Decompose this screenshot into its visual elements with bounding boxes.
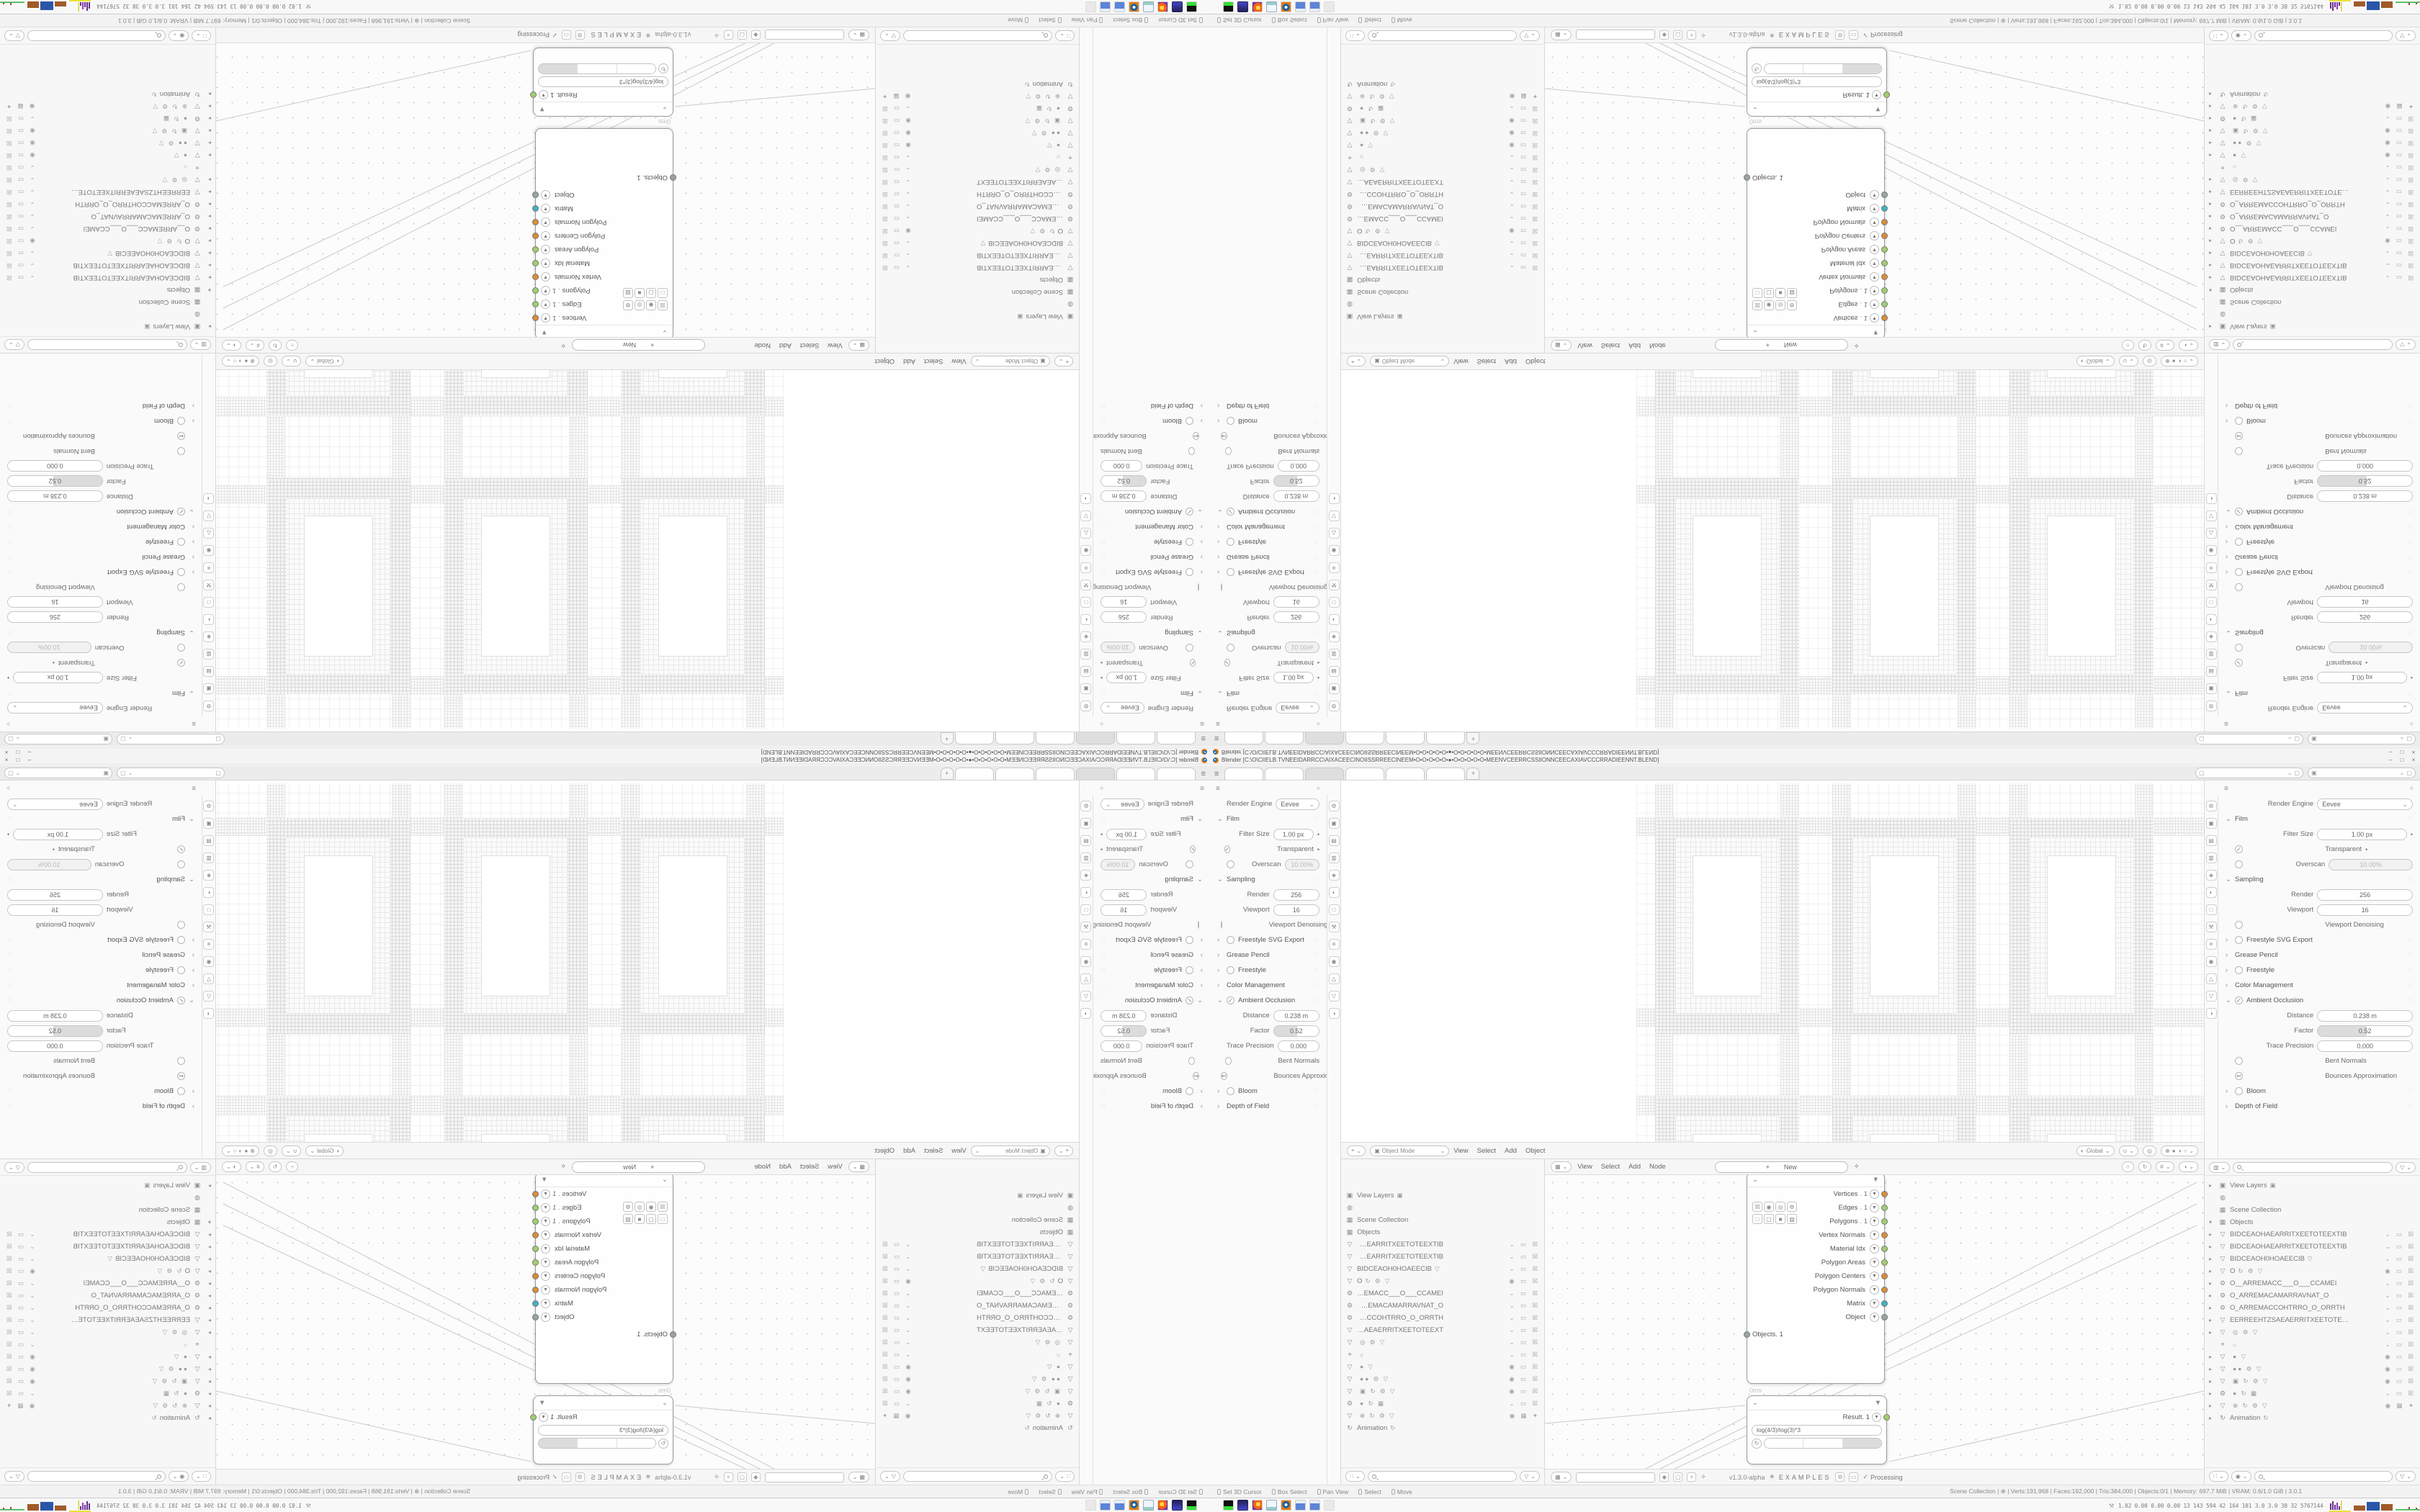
properties-row[interactable]: Viewport 16 ∷ — [0, 595, 202, 610]
checkbox[interactable] — [1221, 1072, 1227, 1080]
expand-caret-icon[interactable]: ▸ — [2209, 1280, 2215, 1287]
calculator-icon[interactable] — [1114, 1, 1125, 12]
object-name[interactable]: BIDCEAOH0HOAEECIB — [115, 249, 190, 257]
outliner-row[interactable]: ▸ ▽ ●● ⚙ ▽ ◉ ▭ ☒ — [879, 1373, 1076, 1385]
collapse-icon[interactable]: ⌄ — [1752, 105, 1758, 113]
properties-tab-icon[interactable]: ⚒ — [2206, 580, 2217, 590]
expand-caret-icon[interactable]: ▸ — [2209, 1378, 2215, 1385]
expand-caret-icon[interactable]: ▸ — [205, 1390, 211, 1397]
outliner-search[interactable] — [27, 1162, 187, 1173]
checkbox[interactable] — [177, 936, 185, 944]
panel-grip-icon[interactable]: ∷ — [7, 402, 12, 409]
user-filter-button[interactable]: ◉⌄ — [2231, 1471, 2252, 1482]
node-canvas[interactable]: ⌄ ▼ ☒◉◎⚙ □▢■▨ Vertices . 1 ▼ Edges . 1 — [1545, 1175, 2204, 1469]
checkbox[interactable] — [1227, 966, 1234, 974]
property-value[interactable]: 0.52 — [1273, 1025, 1319, 1037]
section-caret-icon[interactable]: ⌄ — [2226, 629, 2231, 636]
menu-item[interactable]: Add — [779, 341, 792, 349]
outliner-row[interactable]: ▸ ▽ ⊕ ↻ ⚙ ▽ ◉ ▦ ✦ — [3, 100, 212, 112]
property-value[interactable]: 0.238 m — [1101, 1010, 1147, 1022]
properties-row[interactable]: Transparent ∷ — [0, 842, 202, 857]
visibility-toggle-icons[interactable]: ⌄ ▭ ☒ — [2385, 114, 2416, 122]
object-name[interactable]: O_ARREMACAMARRAVNAT_O — [1357, 202, 1443, 210]
checkbox[interactable] — [1190, 659, 1196, 667]
funnel-icon[interactable]: ▼ — [541, 1176, 547, 1184]
properties-row[interactable]: Render 256 ∷ — [1093, 610, 1210, 625]
object-name[interactable]: O_ARREMACCOHTRRO_O_ORRTH — [75, 200, 190, 208]
section-caret-icon[interactable]: › — [2226, 402, 2231, 410]
property-value[interactable]: 256 — [1273, 612, 1319, 624]
expand-caret-icon[interactable]: ▸ — [205, 323, 211, 330]
properties-row[interactable]: Filter Size 1.00 px ∷ — [1093, 670, 1210, 685]
outliner-row[interactable]: ▸ ▽ ▣ ↻ ⚙ ▽ ◉ ▭ ☒ — [2208, 1375, 2417, 1387]
fake-user-icon[interactable]: ◆ — [1659, 1472, 1669, 1482]
properties-row[interactable]: Bounces Approximation ∷ — [1210, 1068, 1327, 1084]
maximize-button[interactable]: □ — [14, 749, 22, 755]
property-value[interactable]: Eevee — [1101, 798, 1144, 810]
panel-grip-icon[interactable]: ∷ — [2408, 569, 2413, 575]
object-name[interactable]: View Layers — [1026, 312, 1063, 320]
settings-icon[interactable]: ⚙ — [575, 30, 585, 40]
properties-tab-icon[interactable]: ◉ — [204, 545, 215, 556]
properties-row[interactable]: › Grease Pencil ∷ — [2218, 948, 2420, 963]
menu-icon[interactable]: ≡ — [1201, 770, 1206, 778]
menu-item[interactable]: View — [951, 358, 966, 366]
pin-icon[interactable]: ✧ — [1854, 1163, 1860, 1171]
expand-caret-icon[interactable]: ▸ — [2209, 127, 2215, 134]
property-value[interactable]: 10.00% — [2329, 859, 2413, 870]
properties-row[interactable]: ⌄ Sampling ∷ — [1093, 625, 1210, 640]
socket-dropdown-icon[interactable]: ▼ — [1870, 190, 1879, 199]
menu-item[interactable]: Select — [800, 1163, 819, 1171]
properties-row[interactable]: ⌄ Film ∷ — [1210, 811, 1327, 827]
outliner-search[interactable] — [1368, 30, 1517, 41]
transform-orientation-selector[interactable]: ◐ Global ⌄ — [305, 1146, 344, 1156]
outliner-row[interactable]: ⌖ ○ ⌄ ▭ ☒ — [2208, 1338, 2417, 1351]
visibility-toggle-icons[interactable]: ◉ ▭ ☒ — [4, 1365, 35, 1373]
outliner-row[interactable]: ▸ ⚙ O__ARREMACC___O___CCAMEI ⌄ ▭ ☒ — [879, 212, 1076, 225]
section-caret-icon[interactable]: ⌄ — [1197, 689, 1203, 697]
workspace-tab[interactable] — [1076, 732, 1115, 744]
outliner-row[interactable]: ▸ ▽ BIDCEAOHAEARRITXEETOTEEXTIB ⌄ ▭ ☒ — [3, 1241, 212, 1253]
node-output-socket-row[interactable]: Vertices . 1 ▼ — [1747, 311, 1884, 325]
section-caret-icon[interactable]: ⌄ — [1217, 689, 1223, 697]
output-socket[interactable] — [532, 1300, 539, 1307]
panel-grip-icon[interactable]: ∷ — [1101, 690, 1105, 696]
outliner-row[interactable]: ▸ ▽ EERREEHTZSAEAERRITXEETOTEEXT ⌄ ▭ ☒ — [879, 176, 1076, 188]
properties-row[interactable]: Trace Precision 0.000 ∷ — [1210, 1038, 1327, 1053]
section-caret-icon[interactable]: ⌄ — [1197, 629, 1203, 636]
search-input[interactable] — [2266, 32, 2388, 40]
blender-icon[interactable] — [1281, 1500, 1291, 1511]
node-output-socket-row[interactable]: Object ▼ — [536, 188, 673, 202]
outliner-row[interactable]: ▸ ▽ EERREEHTZSAEAERRITXEETOTEEXT ⌄ ▭ ☒ — [1344, 1324, 1541, 1336]
unlink-icon[interactable]: × — [1687, 1472, 1696, 1482]
properties-tab-icon[interactable]: ✳ — [2206, 562, 2217, 573]
copy-icon[interactable]: ▢ — [738, 30, 747, 40]
workspace-tab[interactable] — [1265, 768, 1304, 780]
properties-tab-icon[interactable]: ▤ — [204, 835, 215, 846]
outliner-row[interactable]: ▸ ▽ ● ▽ ◉ ▭ ☒ — [879, 1361, 1076, 1373]
properties-tab-icon[interactable]: ✳ — [204, 562, 215, 573]
checkbox[interactable] — [2235, 508, 2243, 516]
socket-dropdown-icon[interactable]: ▼ — [541, 1285, 550, 1295]
maximize-button[interactable]: □ — [2398, 749, 2406, 755]
section-caret-icon[interactable]: › — [1197, 936, 1203, 944]
filter-button[interactable]: ▽⌄ — [4, 1471, 24, 1482]
formula-field[interactable]: log(4/3)/log(3)*3 — [1752, 1425, 1882, 1436]
properties-row[interactable]: Bounces Approximation ∷ — [2218, 428, 2420, 444]
checkbox[interactable] — [1227, 936, 1234, 944]
node-option-icon[interactable]: ◎ — [635, 1202, 645, 1212]
properties-row[interactable]: ⌄ Film ∷ — [1093, 811, 1210, 827]
section-caret-icon[interactable]: › — [1197, 1087, 1203, 1095]
panel-grip-icon[interactable]: ∷ — [7, 554, 12, 560]
section-caret-icon[interactable]: ⌄ — [1217, 876, 1223, 883]
panel-grip-icon[interactable]: ∷ — [1101, 816, 1105, 822]
panel-grip-icon[interactable]: ∷ — [2408, 982, 2413, 989]
outliner-row[interactable]: ▸ ⚙ O__ARREMACC___O___CCAMEI ⌄ ▭ ☒ — [3, 222, 212, 235]
section-caret-icon[interactable]: › — [2226, 538, 2231, 546]
menu-item[interactable]: View — [1577, 341, 1592, 349]
node-option-icon[interactable]: ☒ — [658, 1202, 668, 1212]
visibility-toggle-icons[interactable]: ⌄ ▭ ☒ — [4, 176, 35, 184]
panel-grip-icon[interactable]: ∷ — [1315, 629, 1319, 636]
property-value[interactable]: 0.52 — [2317, 1025, 2413, 1037]
socket-dropdown-icon[interactable]: ▼ — [541, 245, 550, 254]
properties-row[interactable]: Transparent ∷ — [2218, 655, 2420, 670]
viewlayer-selector[interactable]: ▣ ⌄ ▢ — [4, 768, 112, 778]
object-name[interactable]: View Layers — [2230, 1182, 2267, 1189]
object-name[interactable]: BIDCEAOHAEARRITXEETOTEEXTIB — [73, 1243, 190, 1251]
workspace-tab[interactable] — [1426, 732, 1465, 744]
properties-row[interactable]: › Bloom ∷ — [1210, 413, 1327, 428]
outliner-row[interactable]: ◍ — [2208, 1192, 2417, 1204]
terminal-icon[interactable] — [1223, 1500, 1234, 1511]
properties-row[interactable]: Render 256 ∷ — [0, 610, 202, 625]
visibility-toggle-icons[interactable]: ◉ ▭ ☒ — [2385, 1353, 2416, 1361]
result-node[interactable]: ⌄ ▼ Result. 1 ▼ log(4/3)/log(3)*3 ↻ — [533, 1395, 673, 1464]
outliner-row[interactable]: ▸ ⚙ ● ↻ ▦ ⌄ ▭ ☒ — [1344, 102, 1541, 114]
new-scene-icon[interactable]: ▢ — [2294, 770, 2300, 776]
section-caret-icon[interactable]: › — [2226, 936, 2231, 944]
properties-tab-icon[interactable]: ▽ — [1329, 991, 1340, 1002]
object-name[interactable]: BIDCEAOH0HOAEECIB — [1357, 239, 1432, 247]
properties-row[interactable]: Transparent ∷ — [1093, 655, 1210, 670]
visibility-toggle-icons[interactable]: ⌄ ▭ ☒ — [2385, 188, 2416, 196]
menu-item[interactable]: Select — [800, 341, 819, 349]
snap-toggle[interactable]: #⌄ — [246, 340, 264, 351]
properties-tab-icon[interactable]: ◉ — [2206, 545, 2217, 556]
processing-status[interactable]: ✓ Processing — [1863, 31, 1902, 39]
node-output-socket-row[interactable]: Material Idx ▼ — [1747, 1242, 1884, 1256]
expand-caret-icon[interactable]: ▸ — [205, 1415, 211, 1421]
visibility-toggle-icons[interactable]: ◉ ▭ ☒ — [4, 1377, 35, 1385]
node-option-icon[interactable]: □ — [658, 1214, 668, 1224]
outliner-row[interactable]: ▸ ▣ View Layers ▣ — [3, 320, 212, 333]
copy-icon[interactable]: ▢ — [738, 1472, 747, 1482]
search-input[interactable] — [2244, 1164, 2388, 1171]
panel-grip-icon[interactable]: ∷ — [1101, 967, 1105, 973]
outliner-row[interactable]: ▸ ▽ O ↻ ⚙ ▽ ◉ ▭ ☒ — [3, 235, 212, 247]
outliner-row[interactable]: ◍ — [1344, 298, 1541, 310]
output-socket[interactable] — [532, 219, 539, 225]
properties-row[interactable]: › Freestyle ∷ — [2218, 963, 2420, 978]
properties-row[interactable]: › Freestyle SVG Export ∷ — [1093, 564, 1210, 580]
expand-caret-icon[interactable]: ▸ — [205, 1317, 211, 1323]
properties-tab-icon[interactable]: ▣ — [2206, 818, 2217, 829]
properties-row[interactable]: Distance 0.238 m ∷ — [2218, 489, 2420, 504]
properties-tab-icon[interactable]: ⚙ — [2206, 801, 2217, 811]
outliner-row[interactable]: ⌖ ○ ⌄ ▭ ☒ — [3, 161, 212, 174]
object-name[interactable]: Scene Collection — [2230, 1206, 2281, 1214]
expand-caret-icon[interactable]: ▸ — [2209, 1403, 2215, 1409]
property-value[interactable]: 0.000 — [2317, 461, 2413, 472]
property-value[interactable]: 0.000 — [1278, 461, 1319, 472]
calculator-icon[interactable] — [1295, 1500, 1306, 1511]
visibility-toggle-icons[interactable]: ◉ ▦ ✦ — [2385, 102, 2416, 110]
pin-icon[interactable]: ✧ — [1099, 720, 1105, 728]
visibility-toggle-icons[interactable]: ⌄ ▭ ☒ — [2385, 1328, 2416, 1336]
checkbox[interactable] — [1225, 447, 1232, 455]
property-value[interactable]: 10.00% — [7, 642, 91, 654]
properties-row[interactable]: Render Engine Eevee ∷ — [1093, 796, 1210, 811]
result-node[interactable]: ⌄ ▼ Result. 1 ▼ log(4/3)/log(3)*3 ↻ — [1747, 1395, 1887, 1464]
properties-row[interactable]: › Bloom ∷ — [1210, 1084, 1327, 1099]
display-mode-button[interactable]: ▥⌄ — [2209, 1162, 2230, 1173]
socket-dropdown-icon[interactable]: ▼ — [1870, 1313, 1879, 1322]
visibility-toggle-icons[interactable]: ⌄ ▭ ☒ — [1510, 178, 1541, 186]
panel-grip-icon[interactable]: ∷ — [1315, 569, 1319, 575]
section-caret-icon[interactable]: › — [2226, 568, 2231, 576]
object-name[interactable]: Scene Collection — [1012, 288, 1063, 296]
visibility-toggle-icons[interactable]: ⌄ ▭ ☒ — [2385, 1243, 2416, 1251]
node-option-icon[interactable]: ☒ — [1752, 300, 1762, 310]
node-option-icon[interactable]: ⚙ — [623, 300, 633, 310]
object-name[interactable]: Animation — [160, 1414, 190, 1422]
visibility-toggle-icons[interactable]: ⌄ ▭ ☒ — [4, 225, 35, 233]
property-value[interactable]: 0.238 m — [1101, 491, 1147, 503]
property-value[interactable]: 0.238 m — [2317, 491, 2413, 503]
visibility-toggle-icons[interactable]: ⌄ ▭ ☒ — [880, 1326, 911, 1334]
section-caret-icon[interactable]: › — [2226, 553, 2231, 561]
panel-grip-icon[interactable]: ∷ — [2408, 967, 2413, 973]
checkbox[interactable] — [1186, 538, 1193, 546]
funnel-icon[interactable]: ▼ — [1873, 328, 1879, 336]
properties-tab-icon[interactable]: ⚙ — [2206, 701, 2217, 711]
visibility-toggle-icons[interactable]: ⌄ ▭ ☒ — [880, 264, 911, 271]
transform-orientation-selector[interactable]: ◐ Global ⌄ — [2076, 1146, 2115, 1156]
panel-grip-icon[interactable]: ∷ — [1101, 569, 1105, 575]
visibility-toggle-icons[interactable]: ◉ ▭ ☒ — [1509, 1277, 1540, 1285]
section-caret-icon[interactable]: › — [189, 402, 194, 410]
object-name[interactable]: BIDCEAOHAEARRITXEETOTEEXTIB — [2230, 1230, 2347, 1238]
output-socket[interactable] — [1881, 1314, 1888, 1320]
object-name[interactable]: O_ARREMACCOHTRRO_O_ORRTH — [1357, 1314, 1443, 1322]
editor-type-button[interactable]: ▦⌄ — [848, 1161, 869, 1172]
section-caret-icon[interactable]: ⌄ — [189, 629, 194, 636]
step-button[interactable] — [539, 1439, 577, 1448]
section-caret-icon[interactable]: › — [189, 538, 194, 546]
object-name[interactable]: Animation — [1033, 80, 1063, 88]
properties-row[interactable]: Distance 0.238 m ∷ — [0, 1008, 202, 1023]
object-name[interactable]: Objects — [2230, 1218, 2253, 1226]
panel-grip-icon[interactable]: ∷ — [1101, 997, 1105, 1004]
outliner-row[interactable]: ▸ ▽ ▣ ↻ ⚙ ▽ ◉ ▭ ☒ — [1344, 114, 1541, 127]
socket-dropdown-icon[interactable]: ▼ — [1870, 1258, 1879, 1267]
section-caret-icon[interactable]: › — [189, 1102, 194, 1110]
properties-tab-icon[interactable]: ▤ — [2206, 835, 2217, 846]
checkbox[interactable] — [1188, 1057, 1195, 1065]
node-output-socket-row[interactable]: Polygon Centers ▼ — [1747, 229, 1884, 243]
workspace-tab[interactable] — [1305, 768, 1344, 780]
step-button[interactable] — [577, 1439, 616, 1448]
search-input[interactable] — [32, 32, 154, 40]
visibility-toggle-icons[interactable]: ◉ ▭ ☒ — [4, 127, 35, 135]
properties-tab-icon[interactable]: ✳ — [1329, 939, 1340, 950]
visibility-toggle-icons[interactable]: ⌄ ▭ ☒ — [4, 274, 35, 282]
outliner-row[interactable]: ▾ ▦ Objects — [1344, 274, 1541, 286]
output-socket[interactable] — [532, 233, 539, 239]
properties-tab-icon[interactable]: ◑ — [204, 1008, 215, 1019]
visibility-toggle-icons[interactable]: ⌄ ▭ ☒ — [4, 1243, 35, 1251]
properties-tab-icon[interactable]: ◑ — [1329, 493, 1340, 504]
visibility-toggle-icons[interactable]: ⌄ ▭ ☒ — [880, 1290, 911, 1297]
checkbox[interactable] — [1225, 1057, 1232, 1065]
properties-tab-icon[interactable]: ▥ — [204, 649, 215, 660]
object-name[interactable]: O_ARREMACCOHTRRO_O_ORRTH — [2230, 1304, 2345, 1312]
pin-icon[interactable]: ✧ — [1099, 785, 1105, 793]
object-name[interactable]: O_ARREMACAMARRAVNAT_O — [2230, 212, 2329, 220]
search-input[interactable] — [1379, 32, 1513, 40]
panel-grip-icon[interactable]: ∷ — [1315, 554, 1319, 560]
expand-caret-icon[interactable]: ▸ — [205, 176, 211, 183]
visibility-toggle-icons[interactable]: ⌄ ▭ ☒ — [880, 215, 911, 222]
section-caret-icon[interactable]: › — [1197, 951, 1203, 959]
section-caret-icon[interactable]: ⌄ — [189, 689, 194, 697]
properties-tab-icon[interactable]: ◉ — [1081, 956, 1092, 967]
properties-row[interactable]: ⌄ Film ∷ — [0, 811, 202, 827]
socket-dropdown-icon[interactable]: ▼ — [541, 1272, 550, 1281]
visibility-toggle-icons[interactable]: ◉ ▭ ☒ — [2385, 1267, 2416, 1275]
properties-tab-icon[interactable]: △ — [2206, 973, 2217, 984]
property-value[interactable]: 0.52 — [7, 1025, 103, 1037]
outliner-row[interactable]: ▸ ⚙ ● ↻ ▦ ⌄ ▭ ☒ — [3, 112, 212, 125]
panel-grip-icon[interactable]: ∷ — [1101, 418, 1105, 424]
object-name[interactable]: O_ARREMACCOHTRRO_O_ORRTH — [977, 1314, 1063, 1322]
node-output-socket-row[interactable]: Polygon Normals ▼ — [1747, 1283, 1884, 1297]
shading-mode-switch[interactable]: ⊕ ● ◑ ○ ⌄ — [222, 1146, 259, 1156]
node-output-socket-row[interactable]: Vertices . 1 ▼ — [536, 311, 673, 325]
pin-icon[interactable]: ✧ — [1700, 1473, 1706, 1481]
visibility-toggle-icons[interactable]: ⌄ ▭ ☒ — [880, 1351, 911, 1359]
node-option-icon[interactable]: ◉ — [646, 300, 656, 310]
panel-grip-icon[interactable]: ∷ — [1315, 967, 1319, 973]
properties-row[interactable]: Trace Precision 0.000 ∷ — [0, 459, 202, 474]
section-caret-icon[interactable]: › — [189, 951, 194, 959]
menu-item[interactable]: Node — [754, 341, 771, 349]
expand-caret-icon[interactable]: ▸ — [205, 1403, 211, 1409]
transform-orientation-selector[interactable]: ◐ Global ⌄ — [305, 356, 344, 367]
outliner-row[interactable]: ▸ ▽ BIDCEAOHAEARRITXEETOTEEXTIB ⌄ ▭ ☒ — [2208, 259, 2417, 271]
object-name[interactable]: BIDCEAOHAEARRITXEETOTEEXTIB — [977, 264, 1063, 271]
properties-row[interactable]: Distance 0.238 m ∷ — [2218, 1008, 2420, 1023]
outliner-row[interactable]: ▦ Scene Collection — [3, 296, 212, 308]
pin-icon[interactable]: ✧ — [2408, 785, 2414, 793]
tree-name-field[interactable] — [1576, 30, 1655, 40]
object-name[interactable]: O — [1058, 227, 1063, 235]
node-option-icon[interactable]: ◎ — [1775, 1202, 1785, 1212]
outliner-row[interactable]: ▸ ▽ BIDCEAOHAEARRITXEETOTEEXTIB ⌄ ▭ ☒ — [1344, 1238, 1541, 1251]
object-name[interactable]: O__ARREMACC___O___CCAMEI — [2230, 225, 2336, 233]
checkbox[interactable] — [2235, 644, 2243, 652]
properties-tab-icon[interactable]: □ — [204, 904, 215, 915]
search-input[interactable] — [32, 1164, 176, 1171]
properties-row[interactable]: Viewport 16 ∷ — [1210, 595, 1327, 610]
search-input[interactable] — [32, 341, 176, 349]
refresh-button[interactable]: ↻ — [2138, 1161, 2152, 1172]
visibility-toggle-icons[interactable]: ⌄ ▭ ☒ — [2385, 261, 2416, 269]
property-value[interactable]: 16 — [1273, 904, 1319, 916]
output-socket[interactable] — [1881, 1259, 1888, 1266]
visibility-toggle-icons[interactable]: ◉ ▭ ☒ — [4, 237, 35, 245]
outliner-row[interactable]: ▸ ▽ O ↻ ⚙ ▽ ◉ ▭ ☒ — [2208, 235, 2417, 247]
collapse-icon[interactable]: ⌄ — [1752, 1176, 1758, 1184]
cycle-icon[interactable]: ↻ — [1752, 64, 1762, 74]
section-caret-icon[interactable]: › — [1197, 417, 1203, 425]
outliner-search[interactable] — [27, 30, 166, 41]
expand-caret-icon[interactable]: ▸ — [2209, 1182, 2215, 1189]
outliner-row[interactable]: ▸ ▽ ● ▽ ◉ ▭ ☒ — [879, 139, 1076, 151]
editor-type-button[interactable]: ▦⌄ — [1551, 1161, 1572, 1172]
properties-tab-icon[interactable]: ✳ — [204, 939, 215, 950]
properties-tab-icon[interactable]: ◑ — [1081, 493, 1092, 504]
object-name[interactable]: O__ARREMACC___O___CCAMEI — [2230, 1279, 2336, 1287]
visibility-toggle-icons[interactable]: ⌄ ▭ ☒ — [1510, 1302, 1541, 1310]
input-socket[interactable] — [1744, 1331, 1750, 1338]
properties-row[interactable]: Viewport Denoising ∷ — [1093, 917, 1210, 932]
notepad-icon[interactable] — [1266, 1500, 1277, 1511]
properties-row[interactable]: Render Engine Eevee ∷ — [1210, 701, 1327, 716]
checkbox[interactable] — [2235, 845, 2243, 853]
properties-row[interactable]: Filter Size 1.00 px ∷ — [2218, 670, 2420, 685]
expand-caret-icon[interactable]: ▸ — [205, 1378, 211, 1385]
viewlayer-selector[interactable]: ▣ ⌄ ▢ — [2308, 734, 2416, 744]
outliner-row[interactable]: ▸ ⚙ O__ARREMACC___O___CCAMEI ⌄ ▭ ☒ — [2208, 1277, 2417, 1290]
filter-button[interactable]: ▽⌄ — [4, 340, 24, 351]
properties-row[interactable]: Bent Normals ∷ — [2218, 444, 2420, 459]
visibility-toggle-icons[interactable]: ⌄ ▭ ☒ — [1510, 153, 1541, 161]
outliner-row[interactable]: ◍ — [3, 1192, 212, 1204]
section-caret-icon[interactable]: › — [1217, 568, 1223, 576]
property-value[interactable]: 0.000 — [2317, 1040, 2413, 1052]
visibility-toggle-icons[interactable]: ⌄ ▭ ☒ — [1510, 202, 1541, 210]
properties-row[interactable]: › Grease Pencil ∷ — [1093, 549, 1210, 564]
visibility-toggle-icons[interactable]: ◉ ▭ ☒ — [1509, 117, 1540, 125]
section-caret-icon[interactable]: › — [189, 568, 194, 576]
maximize-button[interactable]: □ — [2398, 757, 2406, 763]
visibility-toggle-icons[interactable]: ⌄ ▭ ☒ — [4, 1390, 35, 1398]
checkbox[interactable] — [1227, 538, 1234, 546]
section-caret-icon[interactable]: › — [1217, 538, 1223, 546]
expand-caret-icon[interactable]: ▸ — [205, 1354, 211, 1360]
panel-grip-icon[interactable]: ∷ — [7, 539, 12, 545]
tree-name-field[interactable] — [765, 30, 844, 40]
expand-caret-icon[interactable]: ▸ — [2209, 189, 2215, 195]
node-option-icon[interactable]: □ — [1752, 1214, 1762, 1224]
visibility-toggle-icons[interactable]: ⌄ ▭ ☒ — [1510, 1314, 1541, 1322]
property-value[interactable]: 256 — [2317, 612, 2413, 624]
